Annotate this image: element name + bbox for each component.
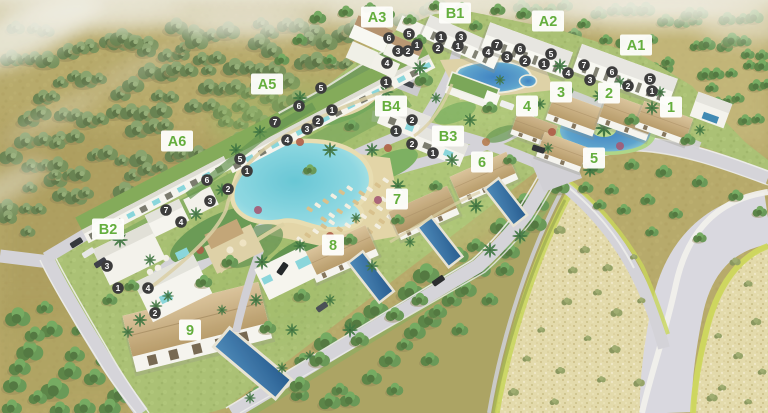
svg-text:7: 7 [164,205,169,215]
svg-text:6: 6 [518,44,523,54]
svg-text:2: 2 [153,308,158,318]
svg-text:A3: A3 [368,10,387,26]
svg-text:A2: A2 [539,14,558,30]
svg-text:7: 7 [393,192,401,208]
svg-text:2: 2 [316,116,321,126]
svg-text:6: 6 [297,101,302,111]
svg-text:3: 3 [557,85,565,101]
svg-text:5: 5 [319,83,324,93]
svg-text:7: 7 [495,40,500,50]
svg-text:2: 2 [436,43,441,53]
svg-text:9: 9 [186,323,194,339]
svg-text:3: 3 [208,196,213,206]
svg-text:1: 1 [667,100,675,116]
svg-text:7: 7 [273,117,278,127]
svg-text:1: 1 [245,166,250,176]
svg-text:5: 5 [648,74,653,84]
svg-text:2: 2 [410,139,415,149]
svg-text:1: 1 [456,41,461,51]
svg-text:6: 6 [478,155,486,171]
svg-text:B1: B1 [446,6,465,22]
svg-text:B3: B3 [439,129,458,145]
svg-text:7: 7 [582,60,587,70]
svg-text:2: 2 [410,115,415,125]
svg-text:2: 2 [226,184,231,194]
svg-text:3: 3 [505,52,510,62]
svg-text:4: 4 [385,58,390,68]
svg-text:3: 3 [105,261,110,271]
svg-text:1: 1 [415,40,420,50]
svg-text:5: 5 [549,49,554,59]
svg-text:4: 4 [179,217,184,227]
svg-text:1: 1 [330,105,335,115]
svg-text:5: 5 [407,29,412,39]
svg-text:A5: A5 [258,77,277,93]
svg-text:4: 4 [146,283,151,293]
svg-text:6: 6 [387,33,392,43]
svg-text:1: 1 [542,59,547,69]
svg-text:A6: A6 [168,134,187,150]
svg-text:6: 6 [205,175,210,185]
svg-text:1: 1 [650,86,655,96]
svg-text:2: 2 [523,56,528,66]
svg-text:1: 1 [439,32,444,42]
svg-text:3: 3 [588,75,593,85]
svg-text:B4: B4 [382,99,401,115]
svg-text:4: 4 [523,99,531,115]
svg-text:6: 6 [610,67,615,77]
svg-text:4: 4 [486,47,491,57]
svg-text:A1: A1 [627,38,646,54]
svg-text:1: 1 [431,148,436,158]
svg-text:8: 8 [329,238,337,254]
svg-text:5: 5 [238,154,243,164]
svg-text:4: 4 [285,135,290,145]
svg-text:1: 1 [116,283,121,293]
svg-text:5: 5 [590,151,598,167]
svg-text:3: 3 [396,46,401,56]
svg-text:2: 2 [605,86,613,102]
svg-text:4: 4 [566,68,571,78]
svg-text:2: 2 [406,46,411,56]
svg-text:1: 1 [394,126,399,136]
svg-text:3: 3 [305,124,310,134]
svg-text:1: 1 [384,77,389,87]
svg-text:2: 2 [626,81,631,91]
svg-text:B2: B2 [99,222,118,238]
